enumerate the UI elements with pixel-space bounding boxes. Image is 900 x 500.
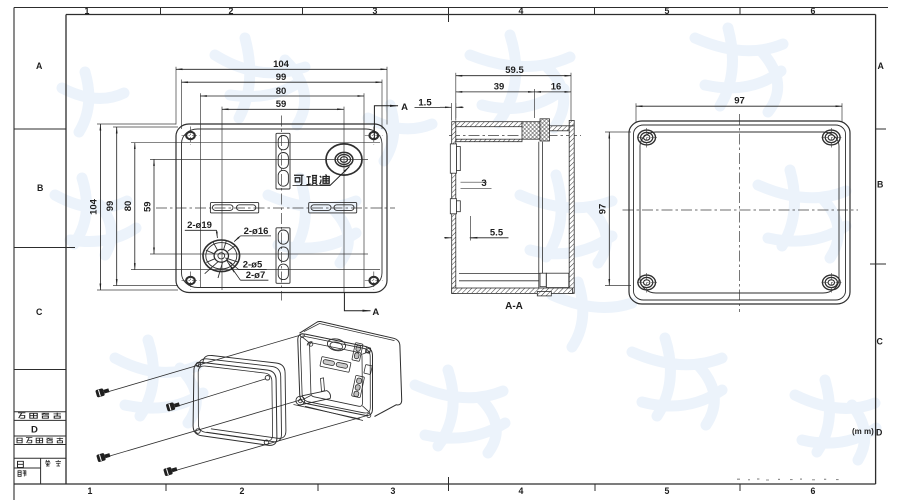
svg-text:59: 59 [276,99,287,110]
svg-text:3: 3 [391,486,396,496]
svg-text:A: A [878,61,885,71]
svg-text:104: 104 [89,198,100,215]
svg-text:5: 5 [665,486,670,496]
svg-text:104: 104 [273,59,290,70]
svg-text:4: 4 [519,486,524,496]
svg-text:1: 1 [88,486,93,496]
svg-text:59: 59 [142,201,153,212]
svg-text:3: 3 [481,178,486,189]
svg-text:A: A [372,307,379,318]
svg-text:1: 1 [85,6,90,16]
svg-text:C: C [877,337,884,347]
svg-text:4: 4 [519,6,524,16]
svg-text:5: 5 [665,6,670,16]
svg-text:A: A [401,102,408,113]
svg-text:99: 99 [105,201,116,212]
svg-text:3: 3 [373,6,378,16]
svg-text:97: 97 [598,204,609,215]
svg-text:(m m): (m m) [852,427,874,436]
svg-text:2: 2 [229,6,234,16]
svg-text:80: 80 [276,86,287,97]
svg-text:2-ø19: 2-ø19 [187,220,212,231]
svg-text:D: D [876,428,882,438]
svg-text:99: 99 [276,72,287,83]
svg-text:2: 2 [240,486,245,496]
svg-text:A-A: A-A [505,301,523,312]
svg-text:6: 6 [811,6,816,16]
svg-text:5.5: 5.5 [490,227,504,238]
svg-text:16: 16 [551,82,562,93]
svg-text:1.5: 1.5 [418,98,432,109]
svg-text:C: C [36,307,43,317]
svg-text:2-ø5: 2-ø5 [243,259,263,270]
svg-text:2-ø7: 2-ø7 [246,270,266,281]
svg-text:59.5: 59.5 [505,65,524,76]
svg-text:6: 6 [811,486,816,496]
svg-text:B: B [37,183,43,193]
svg-text:2-ø16: 2-ø16 [244,226,269,237]
svg-text:39: 39 [494,82,505,93]
svg-text:D: D [31,425,38,436]
svg-text:A: A [36,61,43,71]
svg-text:80: 80 [123,201,134,212]
svg-text:97: 97 [734,96,745,107]
svg-text:B: B [877,180,883,190]
